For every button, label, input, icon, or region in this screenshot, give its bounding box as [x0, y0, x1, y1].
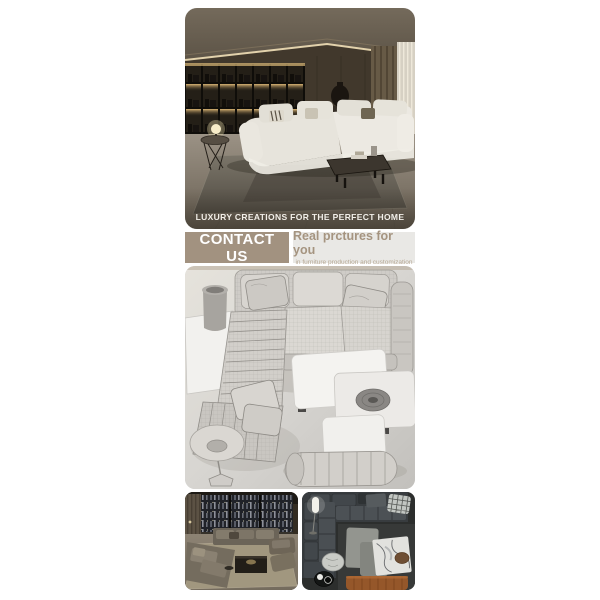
city-window — [201, 495, 293, 533]
tagline-title: Real prctures for you — [293, 229, 415, 258]
showroom-night-illustration — [185, 492, 298, 590]
tagline-panel: Real prctures for you in furniture produ… — [293, 232, 415, 263]
showroom-night-image — [185, 492, 298, 590]
wireframe-render-image — [185, 266, 415, 489]
wireframe-scene-illustration — [185, 266, 415, 489]
sofa-topdown-illustration — [302, 492, 415, 590]
product-detail-column: LUXURY CREATIONS FOR THE PERFECT HOME CO… — [185, 8, 415, 590]
tagline-subtitle: in furniture production and customizatio… — [295, 259, 412, 266]
sofa-topdown-dark-image — [302, 492, 415, 590]
contact-bar: CONTACT US Real prctures for you in furn… — [185, 232, 415, 263]
wire-ottoman — [285, 451, 398, 487]
bottom-gallery — [185, 492, 415, 590]
hero-image: LUXURY CREATIONS FOR THE PERFECT HOME — [185, 8, 415, 229]
leather-bench — [346, 576, 408, 590]
checkered-pillow — [387, 494, 411, 515]
page-root: LUXURY CREATIONS FOR THE PERFECT HOME CO… — [0, 0, 600, 600]
contact-us-button[interactable]: CONTACT US — [185, 232, 289, 263]
hero-caption: LUXURY CREATIONS FOR THE PERFECT HOME — [185, 188, 415, 229]
